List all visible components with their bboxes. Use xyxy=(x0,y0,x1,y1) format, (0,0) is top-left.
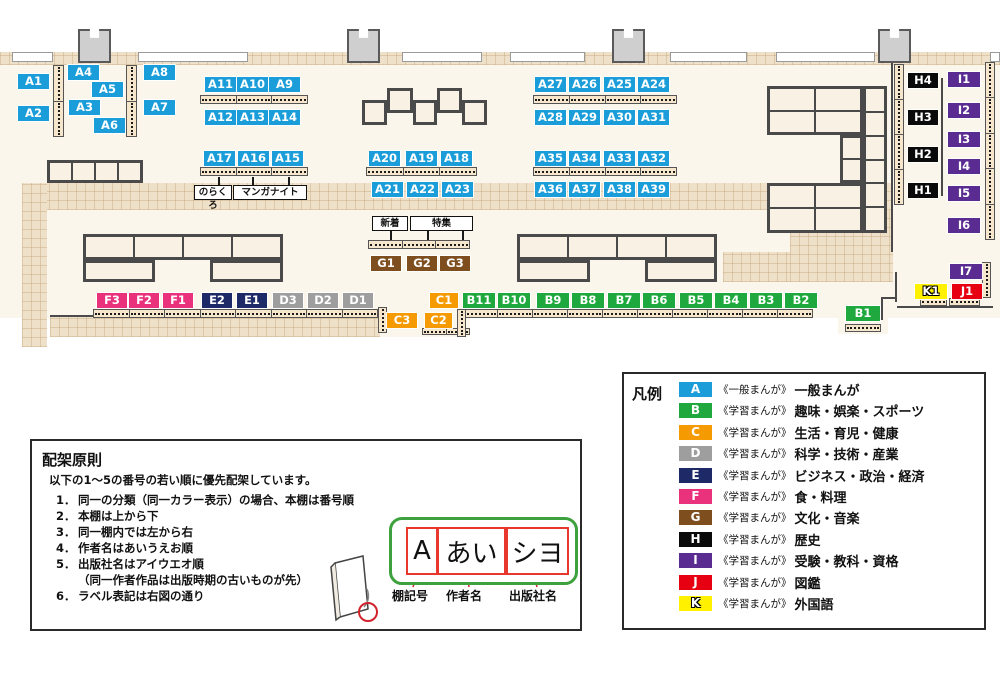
wall-line xyxy=(891,62,893,252)
table-cell xyxy=(232,236,281,258)
table-block xyxy=(83,234,283,260)
shelf-segment xyxy=(237,96,273,103)
principle-number: 5． xyxy=(56,556,78,588)
shelf-segment xyxy=(54,66,63,102)
shelf-segment xyxy=(463,310,498,317)
shelf-label-J1: J1 xyxy=(952,284,982,299)
callout-特集: 特集 xyxy=(410,216,473,231)
shelf-segment xyxy=(343,310,378,317)
shelf-label-A9: A9 xyxy=(269,77,300,92)
shelf-label-A30: A30 xyxy=(604,110,635,125)
pillar xyxy=(347,29,380,63)
shelf-label-A4: A4 xyxy=(68,65,99,80)
shelf-label-A8: A8 xyxy=(144,65,175,80)
legend-category: 歴史 xyxy=(795,530,821,549)
legend-row-F: F《学習まんが》食・料理 xyxy=(679,489,980,504)
table-block xyxy=(387,88,413,113)
shelf-label-H3: H3 xyxy=(908,110,938,125)
shelf-label-C1: C1 xyxy=(430,293,458,308)
wall-line xyxy=(881,297,883,320)
shelf-label-H1: H1 xyxy=(908,183,938,198)
shelf-segment xyxy=(778,310,812,317)
legend-chip-F: F xyxy=(679,489,712,504)
table-cell xyxy=(769,88,815,111)
shelf-segment xyxy=(641,168,676,175)
principle-number: 3． xyxy=(56,524,78,540)
legend-bracket: 《学習まんが》 xyxy=(718,532,792,547)
shelf-segment xyxy=(201,96,237,103)
shelf-label-B6: B6 xyxy=(643,293,675,308)
shelf-segment xyxy=(568,310,603,317)
shelf-label-A33: A33 xyxy=(604,151,635,166)
table-cell xyxy=(769,208,815,231)
legend-bracket: 《学習まんが》 xyxy=(718,510,792,525)
callout-pointer xyxy=(288,177,290,185)
shelf-segment xyxy=(986,63,994,98)
legend-rows: A《一般まんが》一般まんがB《学習まんが》趣味・娯楽・スポーツC《学習まんが》生… xyxy=(679,382,980,617)
shelf-segment xyxy=(201,310,237,317)
legend-category: 文化・音楽 xyxy=(795,508,860,527)
shelf-label-A35: A35 xyxy=(535,151,566,166)
table-cell xyxy=(865,183,885,207)
shelf-label-E1: E1 xyxy=(237,293,267,308)
table-cell xyxy=(647,262,715,280)
legend-category: 生活・育児・健康 xyxy=(795,423,899,442)
shelf-label-A38: A38 xyxy=(604,182,635,197)
table-cell xyxy=(568,236,617,258)
shelf-strip xyxy=(368,240,470,249)
principle-text: 同一の分類（同一カラー表示）の場合、本棚は番号順 xyxy=(78,492,354,508)
legend-bracket: 《学習まんが》 xyxy=(718,468,792,483)
legend-category: 外国語 xyxy=(795,594,834,613)
table-cell xyxy=(415,102,435,123)
principle-text: 作者名はあいうえお順 xyxy=(78,540,193,556)
legend-category: ビジネス・政治・経済 xyxy=(795,466,925,485)
shelf-label-A27: A27 xyxy=(535,77,566,92)
shelf-label-B3: B3 xyxy=(750,293,782,308)
wall-window xyxy=(990,52,1000,62)
shelf-label-A18: A18 xyxy=(441,151,472,166)
table-cell xyxy=(842,159,861,181)
legend-row-A: A《一般まんが》一般まんが xyxy=(679,382,980,397)
shelf-label-A23: A23 xyxy=(442,182,473,197)
shelf-label-A1: A1 xyxy=(18,74,49,89)
table-cell xyxy=(212,262,281,280)
table-cell xyxy=(519,236,568,258)
shelf-label-A7: A7 xyxy=(144,100,175,115)
shelf-label-A28: A28 xyxy=(535,110,566,125)
shelf-label-E2: E2 xyxy=(202,293,232,308)
legend-bracket: 《学習まんが》 xyxy=(718,425,792,440)
shelf-label-I5: I5 xyxy=(948,186,980,201)
principle-text: 同一棚内では左から右 xyxy=(78,524,193,540)
shelf-label-A34: A34 xyxy=(569,151,600,166)
principle-item-6: 6．ラベル表記は右図の通り xyxy=(56,588,386,604)
shelf-label-A29: A29 xyxy=(569,110,600,125)
wall-window xyxy=(12,52,53,62)
table-cell xyxy=(85,262,153,280)
shelf-segment xyxy=(603,310,638,317)
shelf-label-B9: B9 xyxy=(537,293,569,308)
shelf-segment xyxy=(570,168,606,175)
library-floor-map-page: のらくろマンガナイト新着特集A1A2A4A5A3A6A8A7A11A10A9A1… xyxy=(0,0,1000,700)
shelf-label-B10: B10 xyxy=(498,293,530,308)
shelf-label-G2: G2 xyxy=(407,256,437,271)
shelf-label-G3: G3 xyxy=(440,256,470,271)
principles-title: 配架原則 xyxy=(42,449,102,470)
caption-publisher: 出版社名 xyxy=(509,587,557,604)
table-cell xyxy=(439,90,460,111)
shelf-label-I2: I2 xyxy=(948,103,980,118)
legend-box: 凡例 A《一般まんが》一般まんがB《学習まんが》趣味・娯楽・スポーツC《学習まん… xyxy=(622,372,986,630)
shelf-label-A14: A14 xyxy=(269,110,300,125)
principle-text: ラベル表記は右図の通り xyxy=(78,588,205,604)
shelf-strip xyxy=(378,307,387,333)
shelf-strip xyxy=(894,64,904,205)
shelf-label-A37: A37 xyxy=(569,182,600,197)
shelf-label-A12: A12 xyxy=(205,110,236,125)
shelf-strip xyxy=(53,65,64,137)
shelf-label-C2: C2 xyxy=(425,313,452,328)
table-cell xyxy=(389,90,411,111)
principle-item-1: 1．同一の分類（同一カラー表示）の場合、本棚は番号順 xyxy=(56,492,386,508)
shelf-label-B4: B4 xyxy=(715,293,747,308)
legend-chip-K: K xyxy=(679,596,712,611)
principle-number: 4． xyxy=(56,540,78,556)
shelf-segment xyxy=(367,168,404,175)
legend-bracket: 《一般まんが》 xyxy=(718,382,792,397)
table-block xyxy=(362,100,387,125)
shelf-segment xyxy=(534,168,570,175)
callout-pointer xyxy=(252,177,254,185)
principles-intro: 以下の1～5の番号の若い順に優先配架しています。 xyxy=(49,472,317,488)
shelf-strip xyxy=(462,309,813,318)
table-cell xyxy=(118,162,141,181)
wall-line xyxy=(881,297,897,299)
wall-band xyxy=(22,183,47,347)
wall-window xyxy=(402,52,482,62)
shelf-label-A24: A24 xyxy=(638,77,669,92)
wall-line xyxy=(897,306,993,308)
legend-bracket: 《学習まんが》 xyxy=(718,553,792,568)
table-block xyxy=(517,234,717,260)
shelf-segment xyxy=(458,310,465,336)
shelf-label-I4: I4 xyxy=(948,159,980,174)
table-cell xyxy=(865,88,885,112)
shelf-segment xyxy=(533,310,568,317)
legend-row-E: E《学習まんが》ビジネス・政治・経済 xyxy=(679,468,980,483)
table-block xyxy=(210,260,283,282)
shelf-segment xyxy=(165,310,201,317)
shelf-segment xyxy=(846,325,880,331)
table-cell xyxy=(769,185,815,208)
principle-item-2: 2．本棚は上から下 xyxy=(56,508,386,524)
shelf-segment xyxy=(369,241,403,248)
shelf-segment xyxy=(307,310,343,317)
table-cell xyxy=(865,136,885,160)
table-cell xyxy=(95,162,118,181)
wall-band xyxy=(723,252,790,282)
legend-chip-E: E xyxy=(679,468,712,483)
shelf-label-I1: I1 xyxy=(948,72,980,87)
legend-chip-I: I xyxy=(679,553,712,568)
legend-bracket: 《学習まんが》 xyxy=(718,446,792,461)
shelf-segment xyxy=(986,134,994,169)
shelf-label-A6: A6 xyxy=(94,118,125,133)
table-block xyxy=(645,260,717,282)
shelf-segment xyxy=(606,168,642,175)
table-cell xyxy=(183,236,232,258)
wall-line xyxy=(941,78,943,196)
shelf-label-A31: A31 xyxy=(638,110,669,125)
legend-bracket: 《学習まんが》 xyxy=(718,596,792,611)
shelf-label-B1: B1 xyxy=(846,306,880,321)
principle-number: 2． xyxy=(56,508,78,524)
table-cell xyxy=(815,111,861,134)
shelf-label-K1: K1 xyxy=(915,284,947,299)
shelf-label-D2: D2 xyxy=(308,293,338,308)
principle-number: 6． xyxy=(56,588,78,604)
shelf-label-D3: D3 xyxy=(273,293,303,308)
shelf-label-A25: A25 xyxy=(604,77,635,92)
table-block xyxy=(83,260,155,282)
shelf-segment xyxy=(570,96,606,103)
shelf-label-A15: A15 xyxy=(272,151,303,166)
principle-text: 出版社名はアイウエオ順 （同一作者作品は出版時期の古いものが先） xyxy=(78,556,308,588)
wall-window xyxy=(670,52,747,62)
shelf-segment xyxy=(440,168,476,175)
caption-author: 作者名 xyxy=(446,587,482,604)
legend-chip-J: J xyxy=(679,575,712,590)
legend-category: 図鑑 xyxy=(795,573,821,592)
callout-のらくろ: のらくろ xyxy=(194,185,232,200)
principles-box: 配架原則 以下の1～5の番号の若い順に優先配架しています。 1．同一の分類（同一… xyxy=(30,439,582,631)
shelf-segment xyxy=(403,241,437,248)
label-diagram: A あい シヨ xyxy=(389,517,578,585)
shelf-segment xyxy=(638,310,673,317)
legend-bracket: 《学習まんが》 xyxy=(718,403,792,418)
shelf-segment xyxy=(130,310,166,317)
shelf-segment xyxy=(983,263,990,297)
shelf-label-C3: C3 xyxy=(387,313,417,328)
shelf-label-A5: A5 xyxy=(92,82,123,97)
shelf-strip xyxy=(200,95,308,104)
table-block xyxy=(437,88,462,113)
shelf-label-B8: B8 xyxy=(572,293,604,308)
shelf-label-A13: A13 xyxy=(237,110,268,125)
table-cell xyxy=(815,88,861,111)
shelf-label-B7: B7 xyxy=(608,293,640,308)
shelf-segment xyxy=(201,168,237,175)
shelf-segment xyxy=(127,102,136,137)
shelf-strip xyxy=(93,309,378,318)
principle-number: 1． xyxy=(56,492,78,508)
shelf-segment xyxy=(237,168,273,175)
table-block xyxy=(462,100,487,125)
shelf-segment xyxy=(423,329,447,334)
label-diagram-shelf-code: A xyxy=(406,527,438,575)
shelf-label-D1: D1 xyxy=(343,293,373,308)
callout-新着: 新着 xyxy=(372,216,408,231)
table-cell xyxy=(617,236,666,258)
shelf-segment xyxy=(606,96,642,103)
table-cell xyxy=(519,262,588,280)
shelf-label-A10: A10 xyxy=(237,77,268,92)
shelf-label-F3: F3 xyxy=(97,293,127,308)
shelf-strip xyxy=(200,167,308,176)
legend-chip-A: A xyxy=(679,382,712,397)
shelf-label-I7: I7 xyxy=(950,264,982,279)
legend-row-H: H《学習まんが》歴史 xyxy=(679,532,980,547)
legend-category: 科学・技術・産業 xyxy=(795,444,899,463)
legend-chip-G: G xyxy=(679,510,712,525)
shelf-segment xyxy=(404,168,441,175)
shelf-label-A26: A26 xyxy=(569,77,600,92)
shelf-segment xyxy=(895,65,903,100)
shelf-segment xyxy=(950,299,979,305)
table-block xyxy=(47,160,143,183)
shelf-label-A39: A39 xyxy=(638,182,669,197)
table-block xyxy=(767,86,863,135)
table-cell xyxy=(865,207,885,231)
principle-item-5: 5．出版社名はアイウエオ順 （同一作者作品は出版時期の古いものが先） xyxy=(56,556,386,588)
shelf-segment xyxy=(895,100,903,135)
callout-マンガナイト: マンガナイト xyxy=(233,185,307,200)
legend-row-K: K《学習まんが》外国語 xyxy=(679,596,980,611)
shelf-strip xyxy=(985,62,995,240)
shelf-label-F1: F1 xyxy=(163,293,193,308)
legend-row-B: B《学習まんが》趣味・娯楽・スポーツ xyxy=(679,403,980,418)
shelf-strip xyxy=(982,262,991,298)
legend-row-G: G《学習まんが》文化・音楽 xyxy=(679,510,980,525)
shelf-strip xyxy=(126,65,137,137)
legend-chip-H: H xyxy=(679,532,712,547)
shelf-label-A19: A19 xyxy=(406,151,437,166)
table-block xyxy=(840,135,863,183)
shelf-strip xyxy=(845,324,881,332)
shelf-segment xyxy=(534,96,570,103)
legend-category: 受験・教科・資格 xyxy=(795,551,899,570)
shelf-segment xyxy=(54,102,63,137)
callout-pointer xyxy=(390,231,392,240)
legend-chip-B: B xyxy=(679,403,712,418)
shelf-label-I3: I3 xyxy=(948,132,980,147)
shelf-segment xyxy=(986,98,994,133)
table-cell xyxy=(666,236,715,258)
shelf-label-B11: B11 xyxy=(463,293,495,308)
shelf-label-A3: A3 xyxy=(69,100,100,115)
shelf-segment xyxy=(236,310,272,317)
shelf-label-I6: I6 xyxy=(948,218,980,233)
shelf-label-A22: A22 xyxy=(407,182,438,197)
shelf-segment xyxy=(498,310,533,317)
label-diagram-author: あい xyxy=(437,527,506,575)
callout-pointer xyxy=(218,177,220,185)
legend-category: 趣味・娯楽・スポーツ xyxy=(795,401,925,420)
shelf-label-A17: A17 xyxy=(204,151,235,166)
callout-pointer xyxy=(427,231,429,240)
shelf-label-G1: G1 xyxy=(371,256,401,271)
shelf-segment xyxy=(379,308,386,332)
table-block xyxy=(413,100,437,125)
legend-row-J: J《学習まんが》図鑑 xyxy=(679,575,980,590)
wall-window xyxy=(510,52,585,62)
shelf-label-A16: A16 xyxy=(238,151,269,166)
shelf-segment xyxy=(272,168,307,175)
shelf-strip xyxy=(920,298,947,306)
legend-row-D: D《学習まんが》科学・技術・産業 xyxy=(679,446,980,461)
table-block xyxy=(517,260,590,282)
shelf-strip xyxy=(457,309,466,337)
principle-text: 本棚は上から下 xyxy=(78,508,159,524)
legend-row-C: C《学習まんが》生活・育児・健康 xyxy=(679,425,980,440)
table-cell xyxy=(72,162,95,181)
principles-list: 1．同一の分類（同一カラー表示）の場合、本棚は番号順2．本棚は上から下3．同一棚… xyxy=(56,492,386,604)
shelf-label-H2: H2 xyxy=(908,147,938,162)
shelf-segment xyxy=(673,310,708,317)
legend-chip-C: C xyxy=(679,425,712,440)
wall-band xyxy=(50,317,380,337)
label-diagram-publisher: シヨ xyxy=(506,527,569,575)
shelf-segment xyxy=(272,96,307,103)
table-cell xyxy=(842,137,861,159)
table-cell xyxy=(134,236,183,258)
shelf-segment xyxy=(986,169,994,204)
shelf-strip xyxy=(533,95,677,104)
legend-bracket: 《学習まんが》 xyxy=(718,575,792,590)
shelf-segment xyxy=(921,299,946,305)
shelf-segment xyxy=(743,310,778,317)
table-cell xyxy=(815,185,861,208)
shelf-strip xyxy=(533,167,677,176)
shelf-label-H4: H4 xyxy=(908,73,938,88)
legend-chip-D: D xyxy=(679,446,712,461)
shelf-label-A11: A11 xyxy=(205,77,236,92)
legend-category: 一般まんが xyxy=(795,380,860,399)
shelf-label-A36: A36 xyxy=(535,182,566,197)
callout-pointer xyxy=(462,231,464,240)
shelf-segment xyxy=(895,135,903,170)
table-cell xyxy=(49,162,72,181)
shelf-label-A21: A21 xyxy=(372,182,403,197)
legend-title: 凡例 xyxy=(632,383,662,404)
table-cell xyxy=(464,102,485,123)
table-block xyxy=(863,86,887,233)
shelf-strip xyxy=(366,167,477,176)
shelf-label-A2: A2 xyxy=(18,106,49,121)
shelf-segment xyxy=(272,310,308,317)
table-cell xyxy=(865,112,885,136)
wall-window xyxy=(776,52,875,62)
caption-shelf-code: 棚記号 xyxy=(392,587,428,604)
table-cell xyxy=(865,160,885,184)
table-cell xyxy=(364,102,385,123)
table-block xyxy=(767,183,863,233)
shelf-label-F2: F2 xyxy=(129,293,159,308)
shelf-segment xyxy=(986,205,994,239)
shelf-strip xyxy=(949,298,980,306)
pillar xyxy=(612,29,645,63)
table-cell xyxy=(815,208,861,231)
shelf-label-A32: A32 xyxy=(638,151,669,166)
principle-item-4: 4．作者名はあいうえお順 xyxy=(56,540,386,556)
pillar xyxy=(78,29,111,63)
wall-window xyxy=(138,52,248,62)
shelf-segment xyxy=(94,310,130,317)
shelf-label-A20: A20 xyxy=(369,151,400,166)
legend-bracket: 《学習まんが》 xyxy=(718,489,792,504)
shelf-segment xyxy=(436,241,469,248)
